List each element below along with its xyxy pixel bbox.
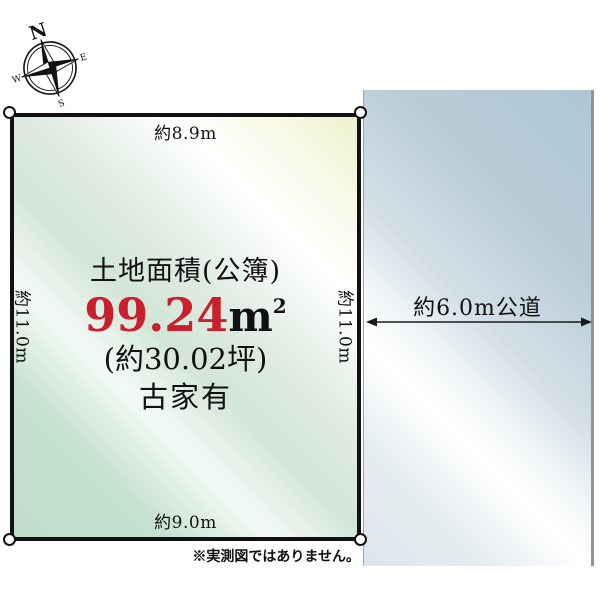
- road-area: 約6.0m公道: [363, 90, 594, 566]
- disclaimer-note: ※実測図ではありません。: [100, 546, 360, 566]
- area-superscript: 2: [273, 294, 287, 318]
- road-width-arrow: [366, 314, 592, 330]
- compass-south-label: S: [57, 98, 66, 109]
- old-house-note: 古家有: [14, 379, 357, 415]
- compass-east-label: E: [79, 52, 88, 64]
- tsubo-value: (約30.02坪): [14, 341, 357, 377]
- dimension-bottom: 約9.0m: [14, 508, 357, 533]
- area-number: 99.24: [84, 288, 228, 342]
- corner-marker-bottom-right: [354, 533, 367, 546]
- compass-rose-icon: N E S W: [6, 22, 94, 114]
- corner-marker-top-right: [354, 106, 367, 119]
- dimension-top: 約8.9m: [14, 119, 357, 144]
- compass-west-label: W: [11, 73, 24, 86]
- land-parcel: 約8.9m 約11.0m 約11.0m 約9.0m 土地面積(公簿) 99.24…: [10, 113, 361, 541]
- land-area-title: 土地面積(公簿): [14, 255, 357, 289]
- land-area-value: 99.24m2: [14, 291, 357, 339]
- parcel-info-block: 土地面積(公簿) 99.24m2 (約30.02坪) 古家有: [14, 255, 357, 416]
- corner-marker-top-left: [3, 106, 16, 119]
- site-plan-diagram: N E S W 約6.0m公道 約8.9m 約11.0m 約11.0m 約9.0…: [0, 0, 600, 600]
- corner-marker-bottom-left: [3, 533, 16, 546]
- area-unit: m: [228, 292, 272, 341]
